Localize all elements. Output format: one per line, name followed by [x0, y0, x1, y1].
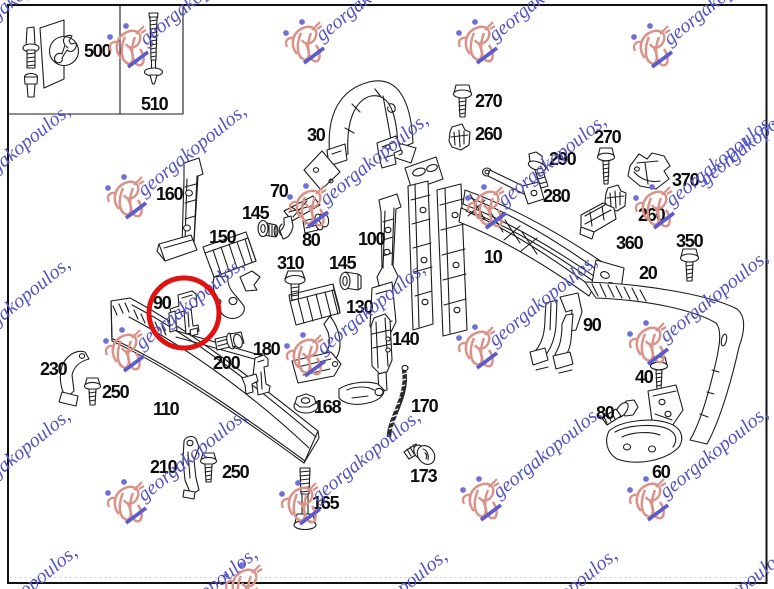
svg-text:90: 90 [583, 315, 602, 335]
svg-text:10: 10 [484, 247, 503, 267]
svg-text:180: 180 [253, 339, 281, 359]
svg-text:100: 100 [358, 229, 386, 249]
svg-text:500: 500 [84, 41, 112, 61]
svg-text:173: 173 [410, 466, 438, 486]
svg-text:230: 230 [40, 359, 68, 379]
svg-text:168: 168 [314, 397, 342, 417]
svg-text:270: 270 [475, 91, 503, 111]
svg-text:140: 140 [392, 329, 420, 349]
svg-text:20: 20 [639, 263, 658, 283]
svg-text:310: 310 [277, 253, 305, 273]
svg-text:200: 200 [213, 353, 241, 373]
svg-text:30: 30 [307, 125, 326, 145]
svg-text:110: 110 [153, 399, 180, 419]
svg-text:350: 350 [676, 231, 704, 251]
svg-text:260: 260 [475, 124, 503, 144]
svg-text:280: 280 [543, 186, 571, 206]
svg-text:250: 250 [102, 382, 130, 402]
svg-text:250: 250 [222, 462, 250, 482]
svg-text:510: 510 [141, 94, 169, 114]
svg-text:70: 70 [270, 181, 289, 201]
svg-text:360: 360 [616, 233, 644, 253]
svg-text:145: 145 [242, 203, 270, 223]
svg-text:150: 150 [209, 227, 237, 247]
svg-text:80: 80 [302, 230, 321, 250]
svg-text:40: 40 [635, 367, 654, 387]
svg-text:145: 145 [329, 253, 357, 273]
